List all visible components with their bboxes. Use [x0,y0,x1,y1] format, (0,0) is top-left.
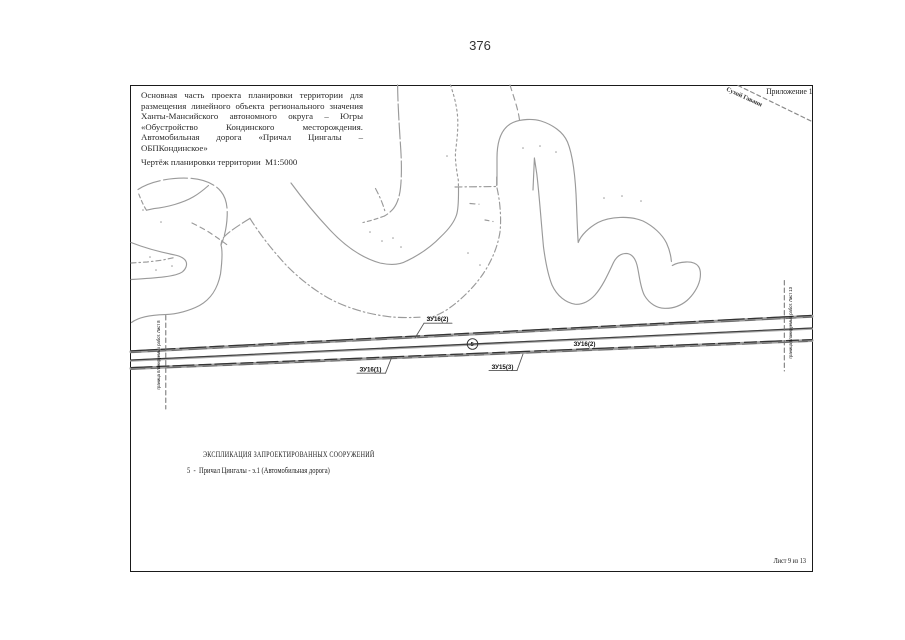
svg-text:5: 5 [471,342,474,348]
svg-text:ЗУ16(2): ЗУ16(2) [427,316,449,323]
svg-text:ЗУ15(3): ЗУ15(3) [492,364,514,371]
svg-text:ЗУ16(1): ЗУ16(1) [360,367,382,374]
svg-text:граница планируемых работ. Лис: граница планируемых работ. Лист 13 [788,286,793,358]
svg-text:граница планируемых работ. Лис: граница планируемых работ. Лист 8 [156,320,161,390]
svg-text:ЗУ16(2): ЗУ16(2) [574,341,596,348]
